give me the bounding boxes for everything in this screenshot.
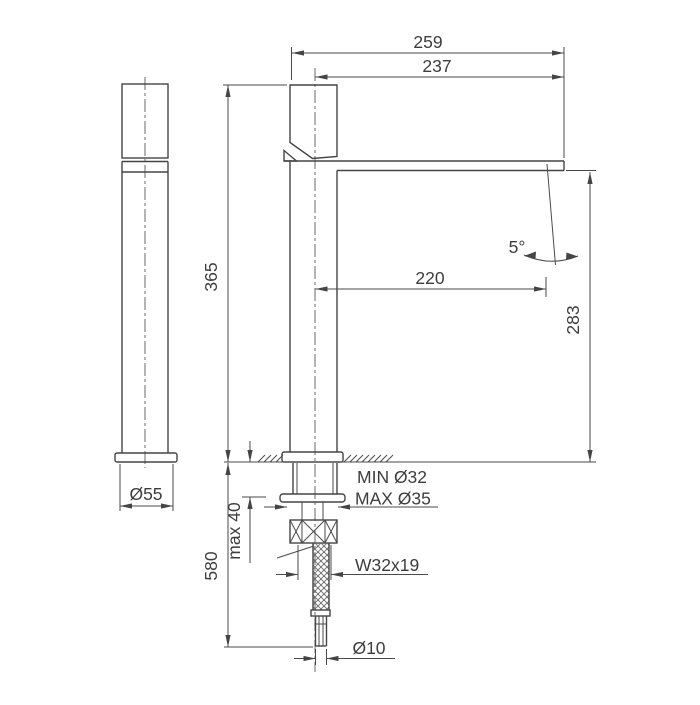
arrowhead xyxy=(338,504,350,509)
mounting-washer xyxy=(280,494,345,502)
dim-spout-reach-label: 220 xyxy=(415,268,444,288)
arrowhead xyxy=(247,450,252,462)
arrowhead xyxy=(225,635,230,647)
dim-overall-width: 259 xyxy=(292,32,565,158)
dim-spout-clearance: 283 xyxy=(563,171,596,463)
dim-overall-width-label: 259 xyxy=(413,32,442,52)
arrowhead xyxy=(275,504,287,509)
dim-height-label: 365 xyxy=(201,262,221,291)
fixing-nut xyxy=(290,520,337,543)
dim-spout-tip-label: 237 xyxy=(422,56,451,76)
dim-spout-clearance-label: 283 xyxy=(563,305,583,334)
dim-spout-tip: 237 xyxy=(316,56,565,80)
dim-hose-diameter: Ø10 xyxy=(294,638,395,665)
dimensions: 259 237 365 220 xyxy=(201,32,596,665)
dim-thread-spec: W32x19 xyxy=(276,545,428,580)
counter-hatching xyxy=(258,455,393,462)
faucet-technical-drawing: Ø55 xyxy=(0,0,700,700)
dim-spout-angle: 5° xyxy=(509,237,578,261)
arrowhead xyxy=(161,503,173,508)
dim-deck-thickness-label: max 40 xyxy=(224,502,244,560)
shank-neck xyxy=(302,502,323,520)
hose-end-tube xyxy=(316,616,327,646)
arrowhead xyxy=(292,50,304,55)
dim-spout-angle-label: 5° xyxy=(509,237,526,257)
arrowhead xyxy=(587,172,592,184)
dim-hole-max-label: MAX Ø35 xyxy=(355,489,431,509)
arrowhead xyxy=(552,50,564,55)
dim-height: 365 xyxy=(201,85,287,462)
arrowhead xyxy=(587,450,592,462)
thread-runout-line xyxy=(277,546,314,558)
arrowhead xyxy=(225,463,230,475)
dim-thread-spec-label: W32x19 xyxy=(355,555,419,575)
arrowhead xyxy=(327,656,339,661)
arrowhead xyxy=(120,503,132,508)
arrowhead xyxy=(552,74,564,79)
front-view xyxy=(224,68,596,672)
arrowhead xyxy=(331,572,343,577)
stream-angle-line xyxy=(547,164,556,265)
arrowhead xyxy=(534,286,546,291)
arrowhead xyxy=(316,286,328,291)
dim-mounting-hole: MIN Ø32 MAX Ø35 xyxy=(264,467,438,510)
arrowhead xyxy=(247,497,252,509)
counter-surface xyxy=(224,455,596,462)
dim-hose-diameter-label: Ø10 xyxy=(352,638,385,658)
arrowhead xyxy=(286,572,298,577)
dim-spout-reach: 220 xyxy=(316,268,547,297)
arrowhead xyxy=(304,656,316,661)
dim-hole-min-label: MIN Ø32 xyxy=(357,467,427,487)
dim-deck-thickness: max 40 xyxy=(224,441,266,563)
drawing-page: Ø55 xyxy=(0,0,700,700)
arrowhead xyxy=(316,74,328,79)
hose-ferrule xyxy=(311,610,330,616)
braided-hose xyxy=(313,543,329,610)
side-base-flange xyxy=(115,453,177,462)
arrowhead xyxy=(225,85,230,97)
arrowhead xyxy=(225,450,230,462)
base-flange xyxy=(282,452,343,462)
dim-hose-length: 580 xyxy=(201,463,313,647)
dim-hose-length-label: 580 xyxy=(201,551,221,580)
dim-base-diameter: Ø55 xyxy=(120,464,173,511)
side-view: Ø55 xyxy=(115,77,177,511)
lever-handle xyxy=(290,85,337,159)
dim-base-diameter-label: Ø55 xyxy=(129,484,162,504)
lever-tip xyxy=(284,151,297,162)
